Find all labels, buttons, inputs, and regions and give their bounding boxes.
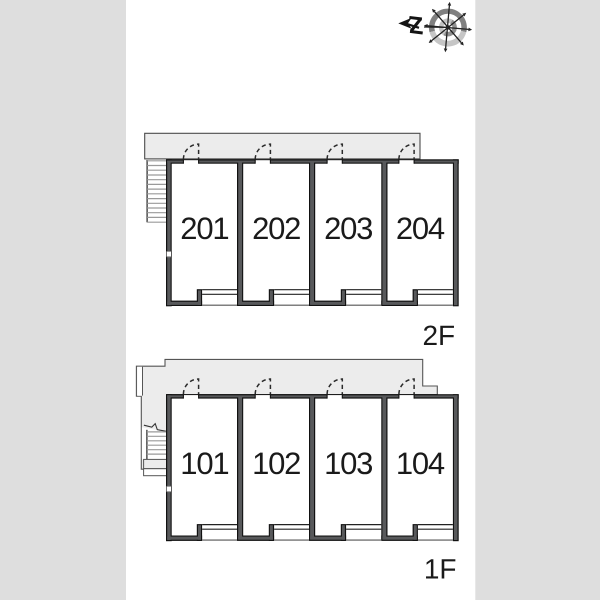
svg-text:104: 104: [396, 446, 445, 481]
svg-text:204: 204: [396, 211, 445, 246]
svg-text:203: 203: [324, 211, 372, 246]
svg-text:202: 202: [252, 211, 300, 246]
svg-text:101: 101: [180, 446, 228, 481]
svg-text:102: 102: [252, 446, 300, 481]
svg-text:201: 201: [180, 211, 228, 246]
svg-text:103: 103: [324, 446, 372, 481]
svg-text:1F: 1F: [424, 554, 457, 585]
svg-text:2F: 2F: [422, 320, 455, 351]
